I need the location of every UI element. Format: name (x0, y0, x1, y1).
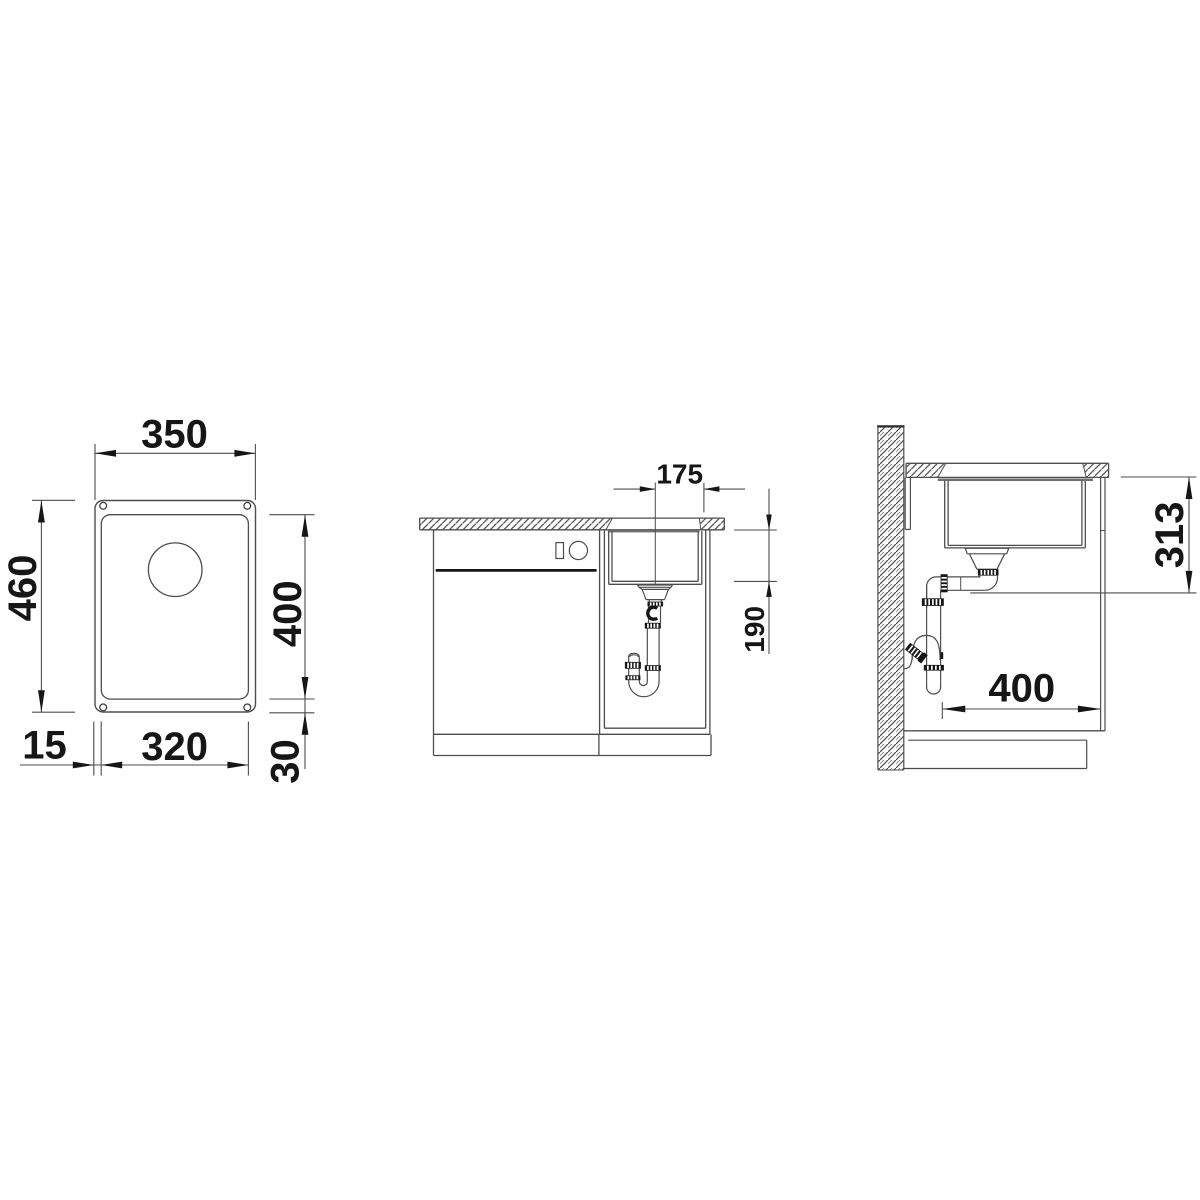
svg-text:460: 460 (1, 555, 45, 622)
svg-text:350: 350 (141, 412, 208, 456)
svg-text:190: 190 (739, 606, 770, 653)
svg-text:400: 400 (266, 580, 310, 647)
svg-text:175: 175 (656, 459, 703, 490)
svg-text:313: 313 (1148, 502, 1192, 569)
svg-text:15: 15 (22, 724, 67, 768)
svg-text:400: 400 (988, 667, 1055, 711)
svg-text:30: 30 (264, 739, 308, 784)
svg-text:320: 320 (141, 725, 208, 769)
